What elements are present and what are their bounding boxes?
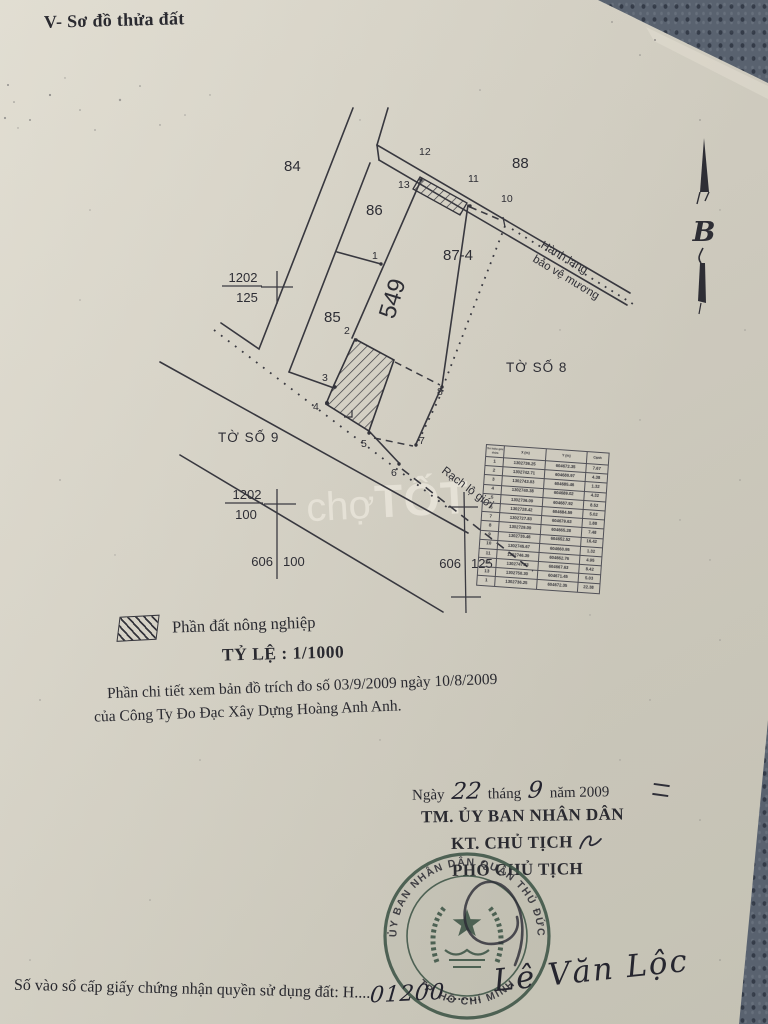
grid-ref-100-den: 100 [235, 507, 257, 522]
margin-tick-marks [652, 783, 670, 797]
vertex-4: 4 [313, 401, 319, 413]
map-scale: TỶ LỆ : 1/1000 [222, 641, 345, 665]
table-cell: 1 [477, 576, 496, 586]
vertex-6: 6 [391, 467, 397, 479]
north-arrow-tail [698, 263, 706, 303]
vertex-2: 2 [344, 325, 350, 337]
grid-ref-1202-num: 1202 [229, 270, 258, 285]
vertex-number-labels: 1 2 3 4 5 6 7 8 10 11 12 13 [313, 146, 513, 479]
vertex-7: 7 [419, 435, 425, 447]
plot-86-label: 86 [366, 202, 383, 219]
month-label: tháng [488, 786, 522, 804]
vertex-3: 3 [322, 372, 328, 384]
vertex-coordinate-table: Số hiệu góc thửa X (m) Y (m) Cạnh 1 1302… [476, 444, 610, 594]
plot-88-label: 88 [512, 155, 529, 172]
vertex-1: 1 [372, 250, 378, 262]
grid-ref-1202b-num: 1202 [233, 487, 262, 502]
grid-ref-606b-left: 606 [439, 556, 461, 571]
grid-ref-125-den: 125 [236, 290, 258, 305]
table-cell: 22.38 [577, 583, 600, 594]
north-arrow: B [670, 130, 730, 315]
grid-ref-606-left: 606 [251, 554, 273, 569]
plot-85-label: 85 [324, 309, 341, 326]
plot-87-4-label: 87-4 [443, 247, 473, 264]
registry-dots: ......... [445, 986, 481, 1004]
grid-ref-100-right: 100 [283, 554, 305, 569]
vertex-12: 12 [419, 146, 431, 158]
coordinate-table-body: 1 1302736.25 604672.35 7.67 2 1302742.71… [477, 457, 609, 594]
sheet-8-label: TỜ SỐ 8 [506, 360, 567, 375]
road-lines [160, 362, 468, 612]
hatch-legend-swatch [116, 615, 159, 642]
sheet-9-label: TỜ SỐ 9 [218, 430, 279, 445]
document-section-title: V- Sơ đồ thửa đất [44, 8, 185, 33]
legend-label: Phần đất nông nghiệp [172, 612, 316, 637]
approval-date-line: Ngày 22 tháng 9 năm 2009 [412, 780, 610, 804]
year-label: năm 2009 [550, 784, 610, 802]
plot-549-label: 549 [374, 276, 412, 322]
handwritten-day: 22 [451, 783, 482, 802]
handwritten-registry-number: 01200 [369, 980, 446, 1009]
vertex-11: 11 [468, 173, 479, 185]
agricultural-land-hatched-area [326, 339, 394, 431]
committee-name: TM. ỦY BAN NHÂN DÂN [421, 805, 624, 828]
vertex-13: 13 [398, 179, 410, 191]
vertex-5: 5 [361, 438, 367, 450]
date-prefix: Ngày [412, 787, 445, 805]
handwritten-month: 9 [527, 781, 544, 800]
plot-84-label: 84 [284, 158, 301, 175]
north-arrow-head [700, 138, 709, 192]
handwritten-initial-squiggle [577, 832, 603, 852]
vertex-10: 10 [501, 193, 513, 205]
north-letter: B [692, 217, 716, 248]
